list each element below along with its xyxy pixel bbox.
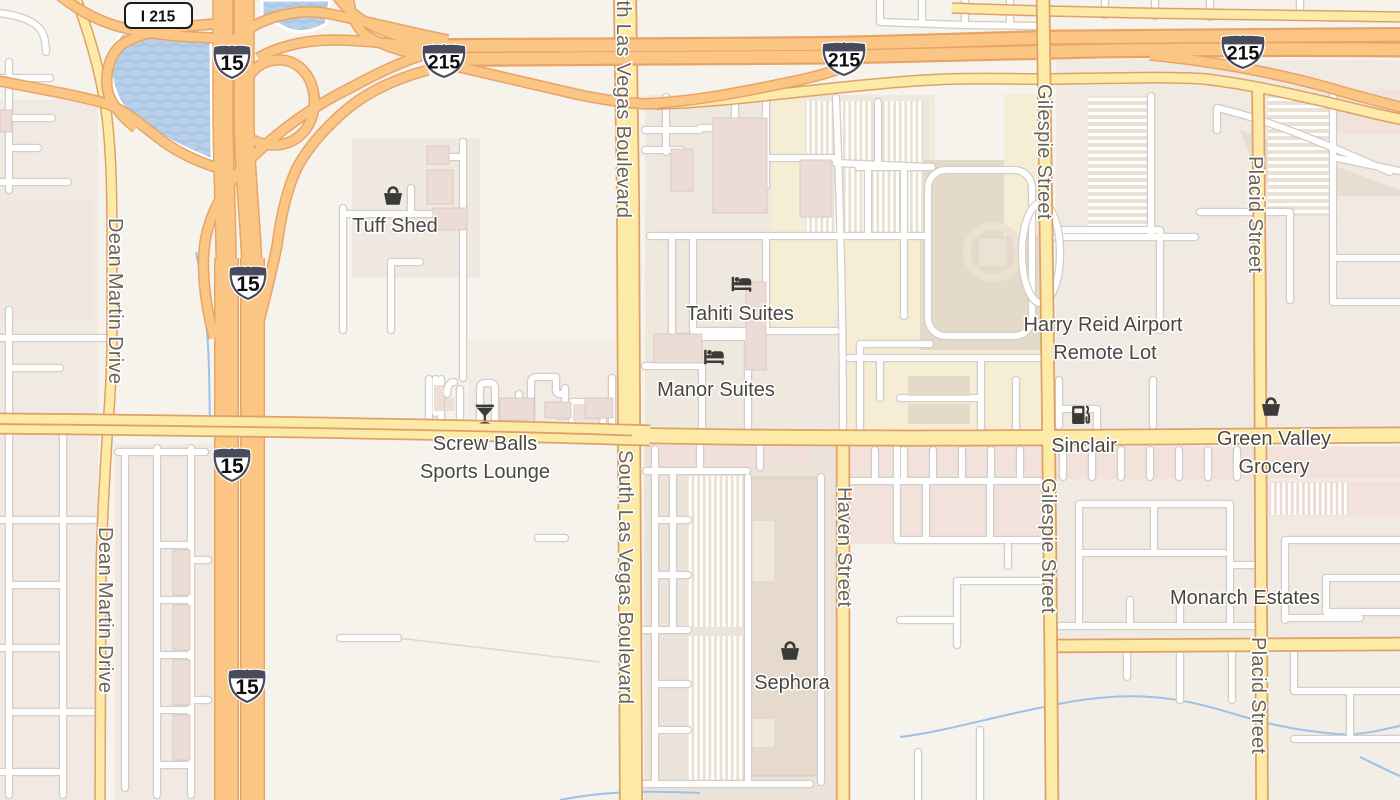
svg-text:Gilespie Street: Gilespie Street [1033, 84, 1055, 220]
svg-text:Haven Street: Haven Street [833, 487, 855, 607]
svg-text:15: 15 [235, 676, 259, 699]
svg-text:Grocery: Grocery [1238, 456, 1309, 478]
svg-text:South Las Vegas Boulevard: South Las Vegas Boulevard [612, 0, 634, 218]
svg-text:15: 15 [220, 455, 244, 478]
svg-text:Monarch Estates: Monarch Estates [1170, 587, 1320, 609]
svg-text:Gilespie Street: Gilespie Street [1037, 478, 1059, 614]
svg-text:215: 215 [828, 50, 861, 72]
svg-text:Placid Street: Placid Street [1247, 637, 1269, 754]
svg-text:Tahiti Suites: Tahiti Suites [686, 303, 794, 325]
svg-text:Dean Martin Drive: Dean Martin Drive [94, 527, 116, 693]
svg-text:Sports Lounge: Sports Lounge [420, 461, 550, 483]
svg-text:215: 215 [428, 52, 461, 74]
svg-text:Sinclair: Sinclair [1051, 435, 1117, 457]
svg-text:Dean Martin Drive: Dean Martin Drive [104, 218, 126, 384]
svg-text:15: 15 [220, 52, 244, 75]
svg-text:Remote Lot: Remote Lot [1053, 342, 1157, 364]
svg-text:Screw Balls: Screw Balls [433, 433, 537, 455]
svg-text:15: 15 [236, 273, 260, 296]
svg-text:Placid Street: Placid Street [1244, 156, 1266, 273]
svg-text:Green Valley: Green Valley [1217, 428, 1331, 450]
svg-text:Tuff Shed: Tuff Shed [352, 215, 438, 237]
svg-text:South Las Vegas Boulevard: South Las Vegas Boulevard [614, 450, 636, 704]
svg-text:Manor Suites: Manor Suites [657, 379, 775, 401]
svg-text:I 215: I 215 [141, 9, 176, 26]
svg-text:Sephora: Sephora [754, 672, 830, 694]
svg-text:215: 215 [1227, 43, 1260, 65]
svg-text:Harry Reid Airport: Harry Reid Airport [1024, 314, 1183, 336]
